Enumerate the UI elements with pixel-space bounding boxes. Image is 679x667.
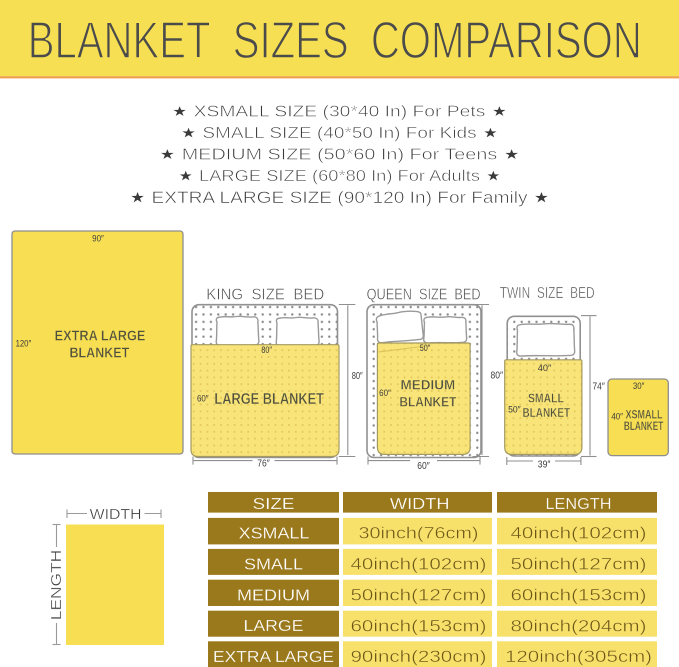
svg-text:LENGTH: LENGTH (48, 550, 65, 620)
svg-text:LARGE: LARGE (244, 618, 304, 635)
svg-text:74″: 74″ (593, 381, 606, 393)
svg-text:★ XSMALL SIZE (30*40 In) For: ★ XSMALL SIZE (30*40 In) For Pets ★ (171, 104, 508, 121)
svg-text:60inch(153cm): 60inch(153cm) (351, 618, 487, 636)
svg-text:60″: 60″ (417, 460, 430, 472)
svg-text:BLANKET: BLANKET (523, 405, 571, 420)
svg-text:BLANKET: BLANKET (624, 421, 664, 433)
svg-text:MEDIUM: MEDIUM (401, 376, 456, 392)
svg-text:60inch(153cm): 60inch(153cm) (511, 587, 647, 605)
svg-text:80″: 80″ (352, 370, 363, 382)
svg-text:50inch(127cm): 50inch(127cm) (511, 556, 647, 574)
svg-text:KING SIZE BED: KING SIZE BED (206, 286, 324, 303)
svg-text:WIDTH: WIDTH (390, 496, 450, 513)
svg-text:LARGE BLANKET: LARGE BLANKET (214, 391, 324, 408)
svg-text:MEDIUM: MEDIUM (237, 587, 310, 604)
svg-text:40inch(102cm): 40inch(102cm) (511, 525, 647, 543)
svg-text:39″: 39″ (538, 458, 551, 470)
svg-text:30″: 30″ (633, 381, 645, 392)
svg-text:TWIN SIZE BED: TWIN SIZE BED (500, 285, 595, 302)
svg-text:60″: 60″ (197, 394, 209, 405)
svg-text:LENGTH: LENGTH (546, 496, 612, 513)
svg-text:80″: 80″ (491, 370, 504, 382)
svg-text:30inch(76cm): 30inch(76cm) (359, 525, 479, 543)
svg-text:BLANKET: BLANKET (70, 344, 130, 361)
svg-text:SMALL: SMALL (528, 391, 564, 406)
svg-text:SMALL: SMALL (244, 556, 303, 573)
svg-text:90″: 90″ (92, 233, 104, 244)
svg-text:EXTRA LARGE: EXTRA LARGE (55, 327, 146, 344)
svg-text:★ SMALL SIZE (40*50 In) For K: ★ SMALL SIZE (40*50 In) For Kids ★ (180, 125, 499, 142)
svg-text:XSMALL: XSMALL (239, 526, 310, 543)
svg-text:120inch(305cm): 120inch(305cm) (505, 648, 652, 666)
svg-text:BLANKET: BLANKET (399, 394, 456, 410)
svg-text:BLANKET SIZES COMPARISON: BLANKET SIZES COMPARISON (28, 12, 642, 70)
svg-text:40inch(102cm): 40inch(102cm) (351, 556, 487, 574)
svg-text:90inch(230cm): 90inch(230cm) (351, 648, 487, 666)
svg-text:50″: 50″ (508, 405, 521, 416)
svg-text:SIZE: SIZE (253, 496, 295, 513)
svg-text:76″: 76″ (257, 458, 270, 470)
svg-text:50″: 50″ (420, 343, 431, 354)
svg-text:40″: 40″ (538, 363, 552, 374)
svg-text:40″: 40″ (611, 411, 623, 422)
svg-text:60″: 60″ (379, 388, 391, 399)
svg-text:120″: 120″ (16, 339, 32, 350)
svg-text:EXTRA LARGE: EXTRA LARGE (213, 649, 334, 666)
svg-text:80inch(204cm): 80inch(204cm) (511, 618, 647, 636)
svg-text:★ MEDIUM SIZE (50*60 In) For: ★ MEDIUM SIZE (50*60 In) For Teens ★ (159, 147, 521, 164)
svg-text:80″: 80″ (261, 345, 272, 356)
svg-text:XSMALL: XSMALL (625, 410, 662, 422)
svg-text:50inch(127cm): 50inch(127cm) (351, 587, 487, 605)
svg-text:WIDTH: WIDTH (90, 506, 142, 523)
svg-text:★ LARGE SIZE (60*80 In) For A: ★ LARGE SIZE (60*80 In) For Adults ★ (178, 168, 502, 185)
svg-text:★ EXTRA LARGE SIZE (90*120 In: ★ EXTRA LARGE SIZE (90*120 In) For Famil… (129, 189, 550, 207)
svg-text:QUEEN SIZE BED: QUEEN SIZE BED (367, 286, 481, 303)
